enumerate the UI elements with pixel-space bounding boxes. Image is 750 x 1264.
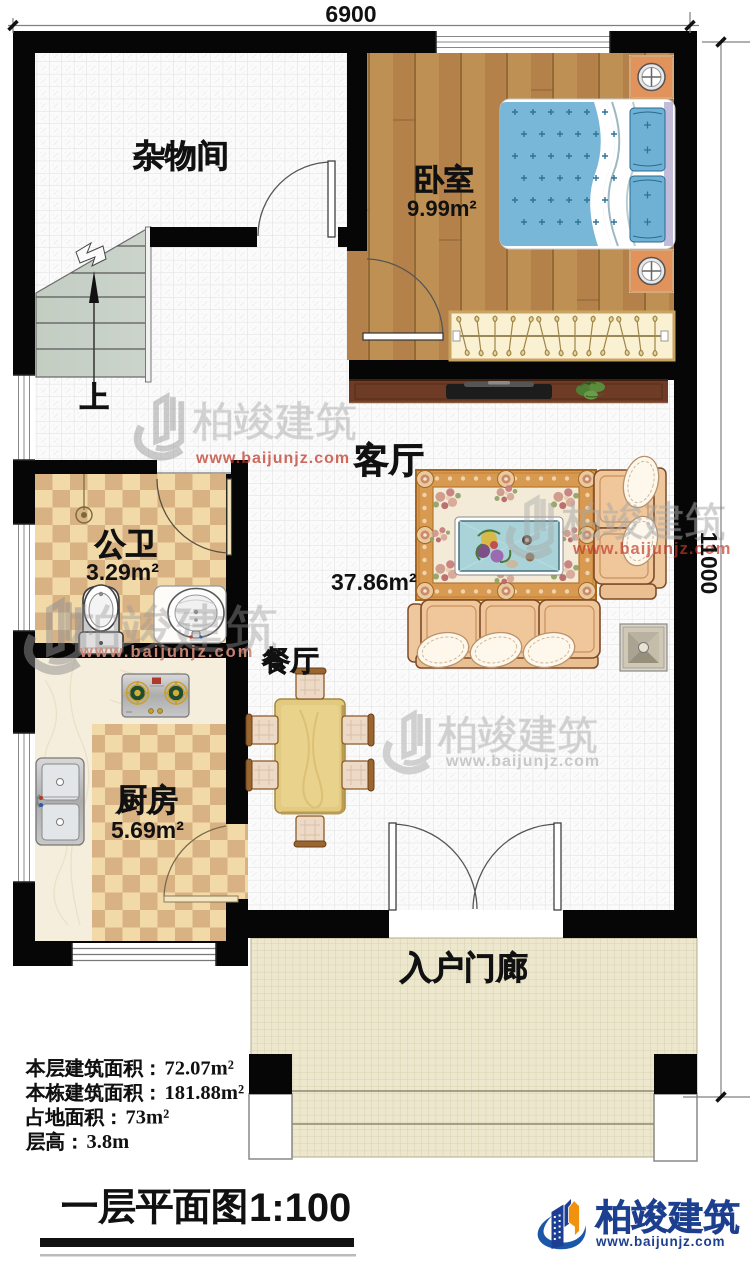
svg-text:www.baijunjz.com: www.baijunjz.com bbox=[445, 753, 600, 770]
svg-text:11000: 11000 bbox=[696, 532, 722, 595]
svg-text:73m²: 73m² bbox=[126, 1107, 170, 1129]
svg-text:37.86m²: 37.86m² bbox=[331, 569, 417, 595]
svg-text:5.69m²: 5.69m² bbox=[111, 817, 184, 843]
svg-text:www.baijunjz.com: www.baijunjz.com bbox=[595, 1234, 725, 1249]
svg-text:181.88m²: 181.88m² bbox=[165, 1082, 245, 1104]
svg-text:1:100: 1:100 bbox=[249, 1186, 351, 1230]
svg-text:www.baijunjz.com: www.baijunjz.com bbox=[195, 450, 350, 467]
svg-text:www.baijunjz.com: www.baijunjz.com bbox=[79, 643, 254, 661]
svg-text:3.29m²: 3.29m² bbox=[86, 559, 159, 585]
svg-text:9.99m²: 9.99m² bbox=[407, 196, 477, 221]
svg-text:3.8m: 3.8m bbox=[87, 1131, 130, 1153]
svg-text:72.07m²: 72.07m² bbox=[165, 1058, 234, 1080]
svg-text:6900: 6900 bbox=[325, 1, 376, 27]
